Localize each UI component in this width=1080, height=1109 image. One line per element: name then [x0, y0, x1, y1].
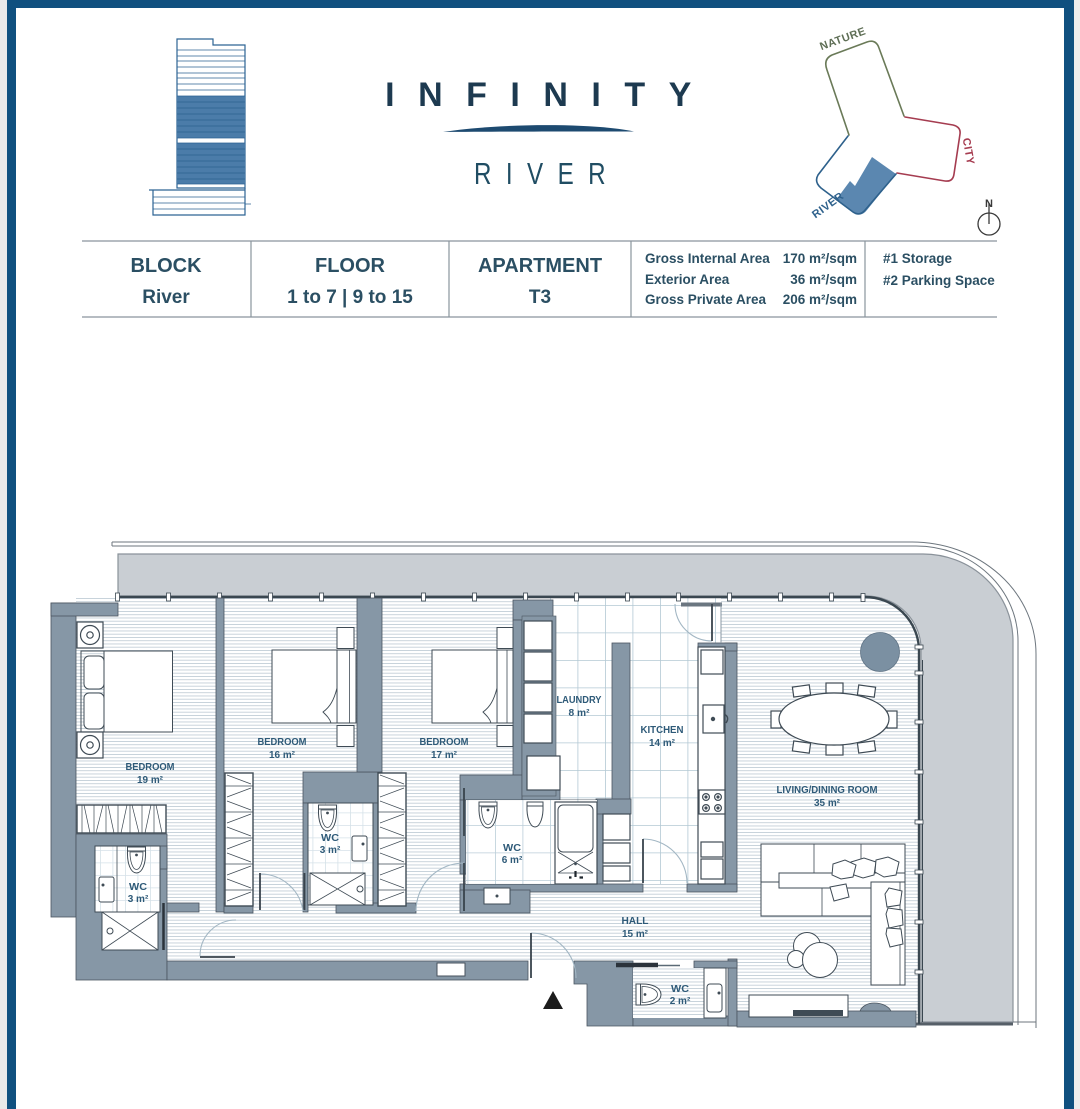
svg-text:36 m²/sqm: 36 m²/sqm: [790, 272, 857, 287]
svg-text:3 m²: 3 m²: [128, 894, 149, 905]
svg-text:KITCHEN: KITCHEN: [641, 724, 684, 736]
svg-text:19 m²: 19 m²: [137, 774, 163, 786]
svg-text:BLOCK: BLOCK: [130, 255, 202, 277]
svg-text:3 m²: 3 m²: [320, 845, 341, 856]
svg-text:River: River: [142, 287, 190, 308]
svg-text:WC: WC: [321, 833, 339, 844]
svg-text:8 m²: 8 m²: [569, 707, 590, 719]
svg-text:35 m²: 35 m²: [814, 797, 840, 809]
svg-text:Gross Internal Area: Gross Internal Area: [645, 251, 770, 266]
svg-text:WC: WC: [503, 843, 521, 854]
svg-text:15 m²: 15 m²: [622, 928, 648, 940]
svg-text:14 m²: 14 m²: [649, 737, 675, 749]
svg-text:2 m²: 2 m²: [670, 996, 691, 1007]
svg-text:#2 Parking Space: #2 Parking Space: [883, 273, 995, 288]
svg-text:T3: T3: [529, 287, 551, 308]
svg-text:HALL: HALL: [622, 915, 650, 927]
svg-text:BEDROOM: BEDROOM: [420, 736, 469, 748]
svg-text:BEDROOM: BEDROOM: [258, 736, 307, 748]
svg-text:N: N: [985, 198, 993, 210]
svg-text:WC: WC: [129, 882, 147, 893]
svg-text:206 m²/sqm: 206 m²/sqm: [783, 292, 857, 307]
svg-text:6 m²: 6 m²: [502, 855, 523, 866]
svg-text:WC: WC: [671, 984, 689, 995]
svg-text:LIVING/DINING ROOM: LIVING/DINING ROOM: [777, 784, 878, 796]
svg-text:LAUNDRY: LAUNDRY: [557, 694, 602, 706]
svg-text:16 m²: 16 m²: [269, 749, 295, 761]
svg-text:APARTMENT: APARTMENT: [478, 255, 602, 277]
svg-text:INFINITY: INFINITY: [385, 76, 715, 114]
svg-text:#1 Storage: #1 Storage: [883, 251, 953, 266]
svg-text:170 m²/sqm: 170 m²/sqm: [783, 251, 857, 266]
svg-text:FLOOR: FLOOR: [315, 255, 386, 277]
svg-text:RIVER: RIVER: [474, 156, 620, 191]
svg-text:BEDROOM: BEDROOM: [126, 761, 175, 773]
svg-text:1 to 7 | 9 to 15: 1 to 7 | 9 to 15: [287, 287, 413, 308]
svg-text:Gross Private Area: Gross Private Area: [645, 292, 767, 307]
svg-text:Exterior Area: Exterior Area: [645, 272, 730, 287]
svg-text:17 m²: 17 m²: [431, 749, 457, 761]
